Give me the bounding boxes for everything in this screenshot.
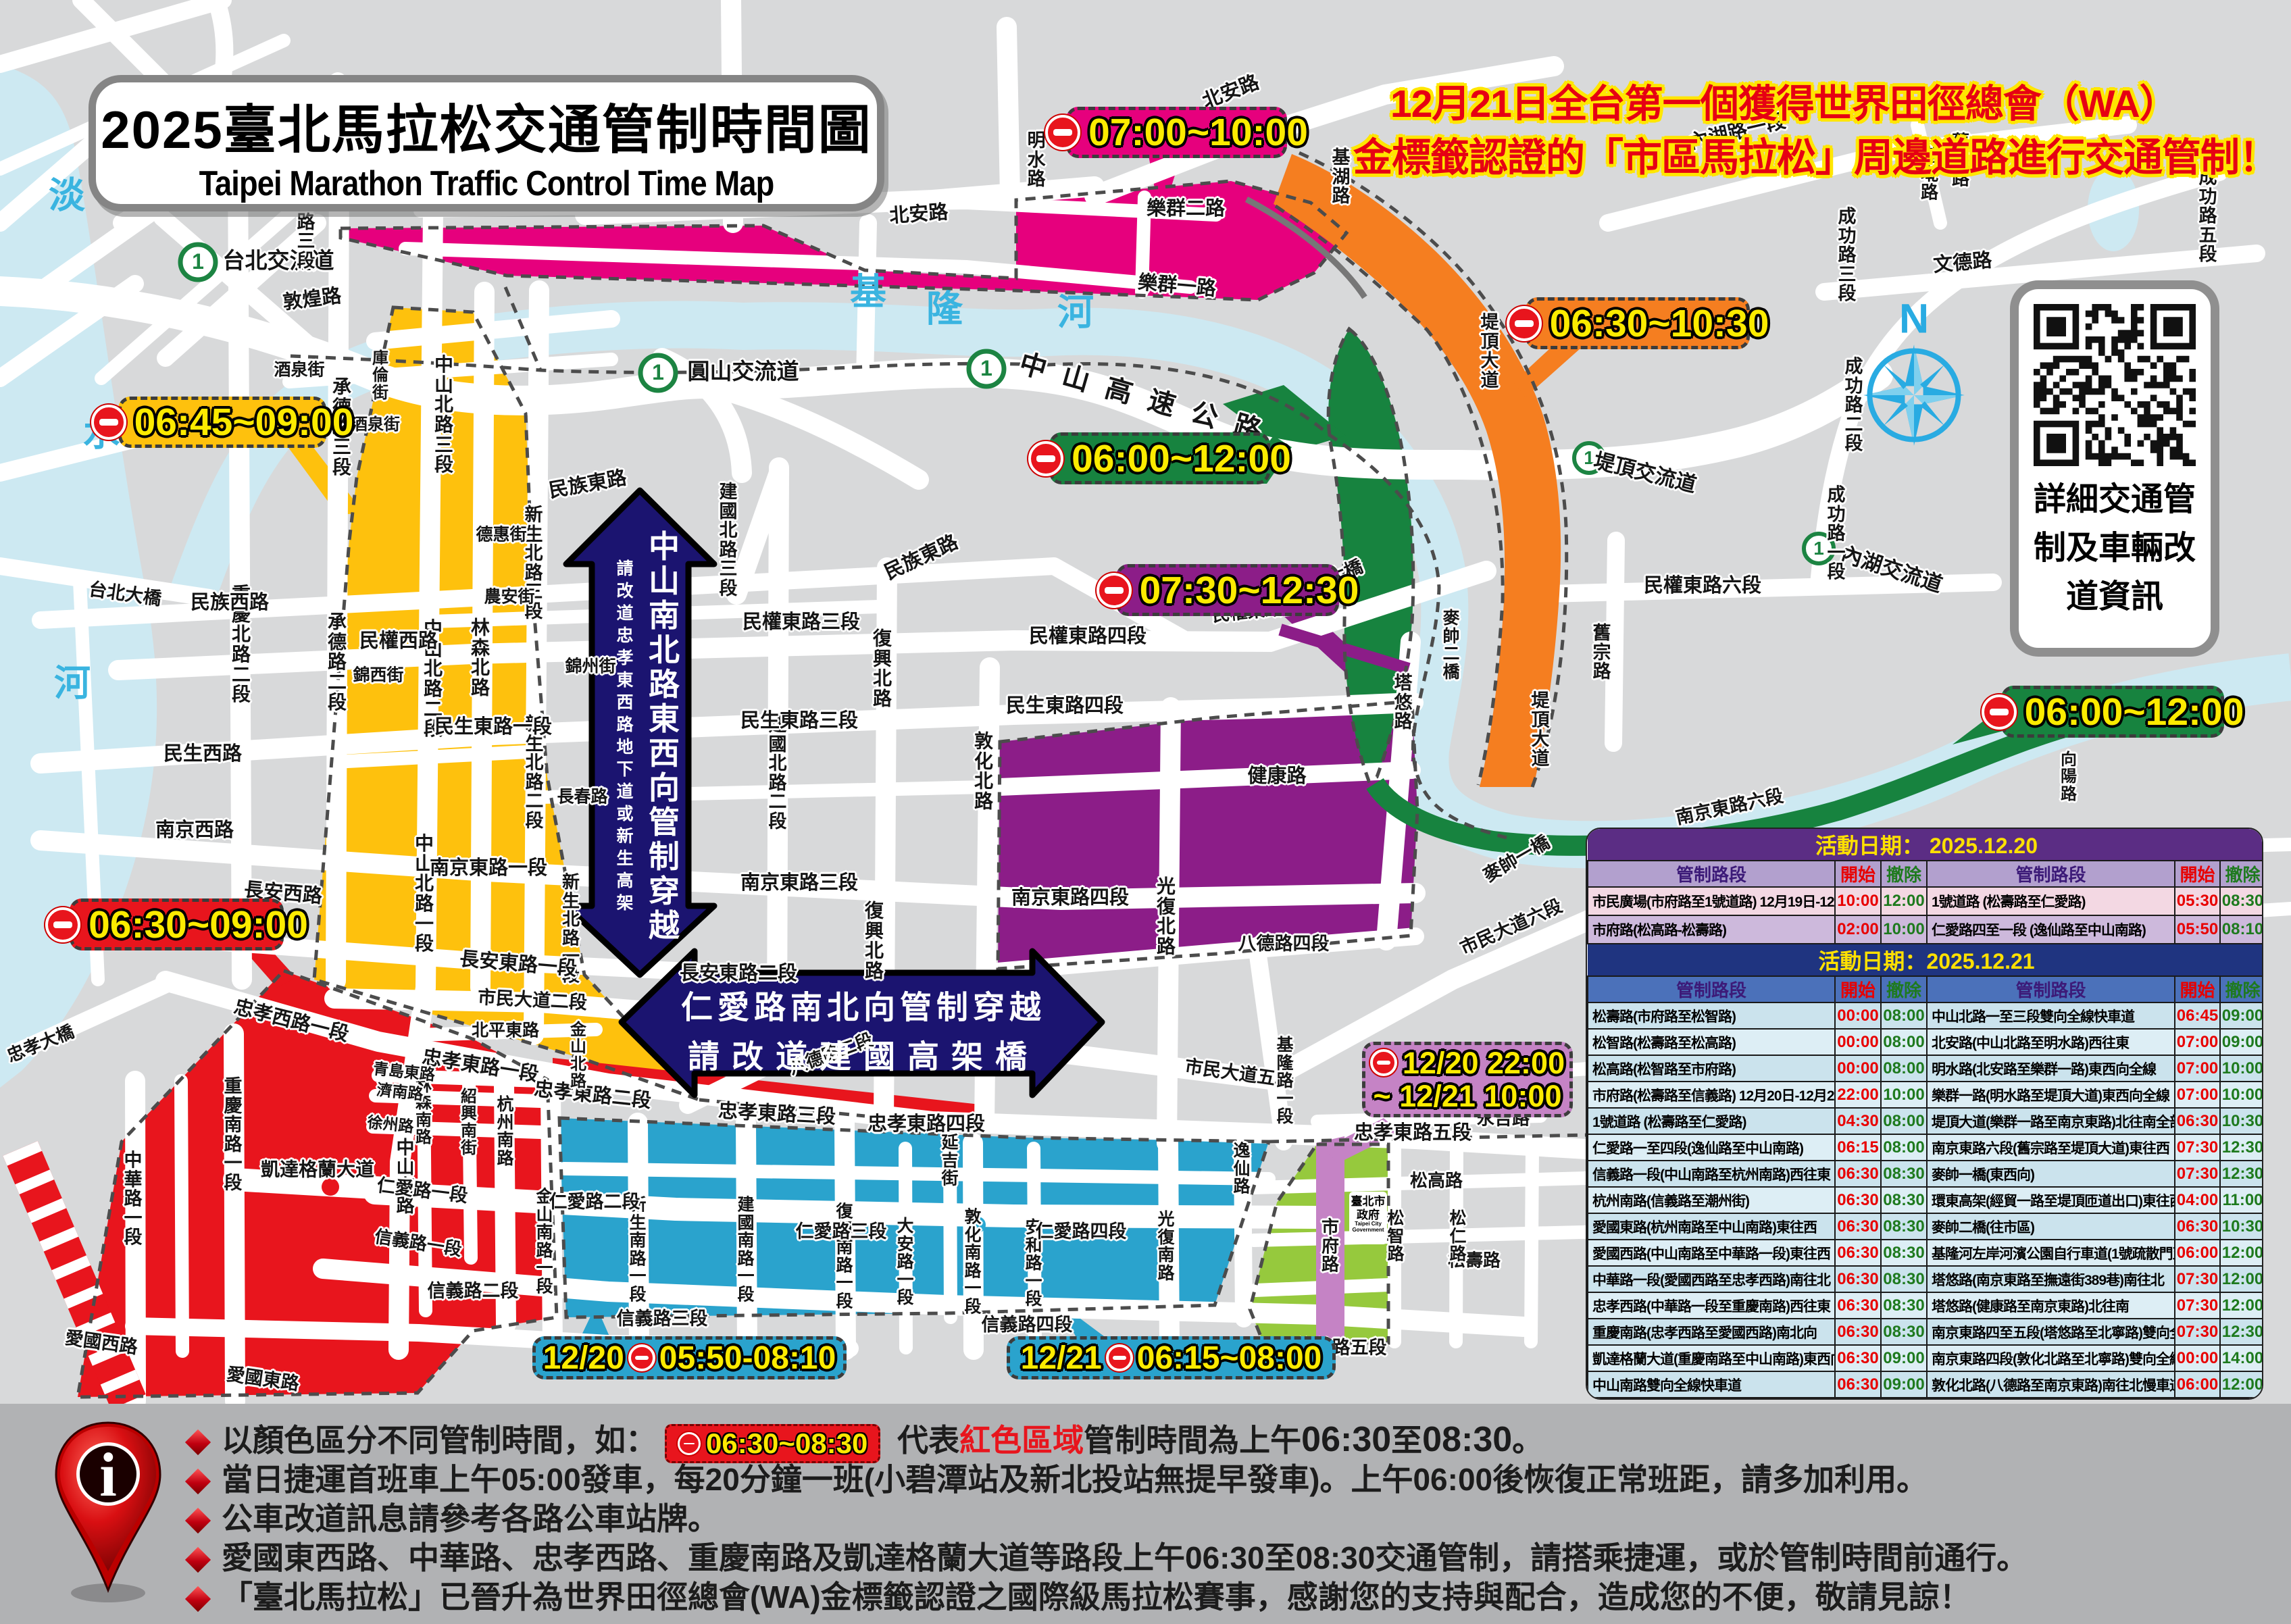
svg-text:1: 1 xyxy=(1813,538,1824,559)
svg-text:1: 1 xyxy=(652,360,664,384)
svg-text:1: 1 xyxy=(192,249,204,274)
svg-text:N: N xyxy=(1899,295,1929,341)
svg-text:1: 1 xyxy=(980,356,992,380)
svg-text:i: i xyxy=(99,1440,117,1509)
